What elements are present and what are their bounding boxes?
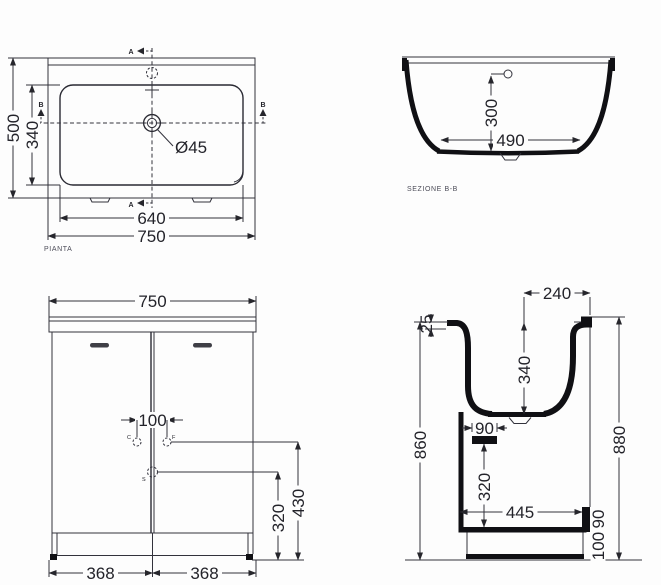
hole-marker-c: C <box>127 435 141 446</box>
svg-text:100: 100 <box>138 411 166 430</box>
cabinet-doors <box>52 332 253 554</box>
svg-text:S: S <box>142 477 146 483</box>
dim-rim-to-front: 240 <box>524 284 590 323</box>
door-handle-left <box>90 343 109 348</box>
svg-text:F: F <box>172 435 176 441</box>
dim-section-width: 490 <box>441 131 580 150</box>
section-bb-view: 300 490 SEZIONE B-B <box>330 0 661 260</box>
svg-text:340: 340 <box>23 121 42 149</box>
dim-hole-spacing: 100 <box>121 411 183 437</box>
plan-view-title: PIANTA <box>44 246 72 253</box>
svg-text:368: 368 <box>190 564 218 583</box>
dim-step-height: 90 <box>589 507 608 533</box>
cabinet-countertop <box>49 317 256 332</box>
svg-text:490: 490 <box>496 131 524 150</box>
plan-view: Ø45 340 500 640 <box>0 0 330 260</box>
svg-text:100: 100 <box>589 532 608 560</box>
dim-rim-thickness: 25 <box>414 314 448 337</box>
hole-marker-s: S <box>142 467 278 483</box>
svg-text:750: 750 <box>137 227 165 246</box>
svg-text:445: 445 <box>506 503 534 522</box>
svg-text:240: 240 <box>543 284 571 303</box>
svg-text:368: 368 <box>86 564 114 583</box>
section-marker-a-bottom: A <box>128 200 153 210</box>
svg-text:B: B <box>38 102 43 109</box>
dim-side-basin-depth: 340 <box>515 323 534 414</box>
section-marker-a-top: A <box>128 48 153 57</box>
svg-text:500: 500 <box>4 114 23 142</box>
dim-height-back: 860 <box>411 322 430 560</box>
dim-plinth-height: 100 <box>589 529 608 564</box>
dim-front-overall-width: 750 <box>49 292 256 317</box>
section-marker-b-right: B <box>260 102 267 123</box>
door-handle-right <box>193 343 212 348</box>
svg-text:340: 340 <box>515 356 534 384</box>
svg-text:320: 320 <box>269 504 288 532</box>
svg-text:880: 880 <box>610 426 629 454</box>
hole-marker-f: F <box>163 435 298 446</box>
svg-text:300: 300 <box>482 99 501 127</box>
technical-drawing-sheet: Ø45 340 500 640 <box>0 0 661 585</box>
svg-text:750: 750 <box>138 292 166 311</box>
svg-text:C: C <box>127 435 131 441</box>
svg-text:90: 90 <box>475 419 494 438</box>
front-view: 750 100 <box>0 260 330 585</box>
drain-diameter-label: Ø45 <box>175 138 207 157</box>
dim-base-depth: 445 <box>460 503 582 522</box>
dim-hole-height: 430 <box>289 442 308 560</box>
cabinet-plinth <box>50 533 253 572</box>
svg-text:320: 320 <box>475 473 494 501</box>
svg-text:90: 90 <box>589 510 608 529</box>
plan-drain <box>140 111 173 146</box>
svg-text:640: 640 <box>137 209 165 228</box>
dim-basin-depth: 340 <box>23 85 60 185</box>
svg-text:860: 860 <box>411 431 430 459</box>
dim-drain-height-side: 320 <box>475 444 494 527</box>
section-tap-hole <box>491 70 512 78</box>
svg-text:430: 430 <box>289 489 308 517</box>
svg-text:A: A <box>128 49 133 56</box>
dim-drain-width: 90 <box>462 419 507 438</box>
svg-text:B: B <box>260 102 265 109</box>
svg-text:A: A <box>128 202 133 209</box>
section-view-title: SEZIONE B-B <box>407 186 458 193</box>
side-section-view: 240 25 340 90 <box>330 260 661 585</box>
